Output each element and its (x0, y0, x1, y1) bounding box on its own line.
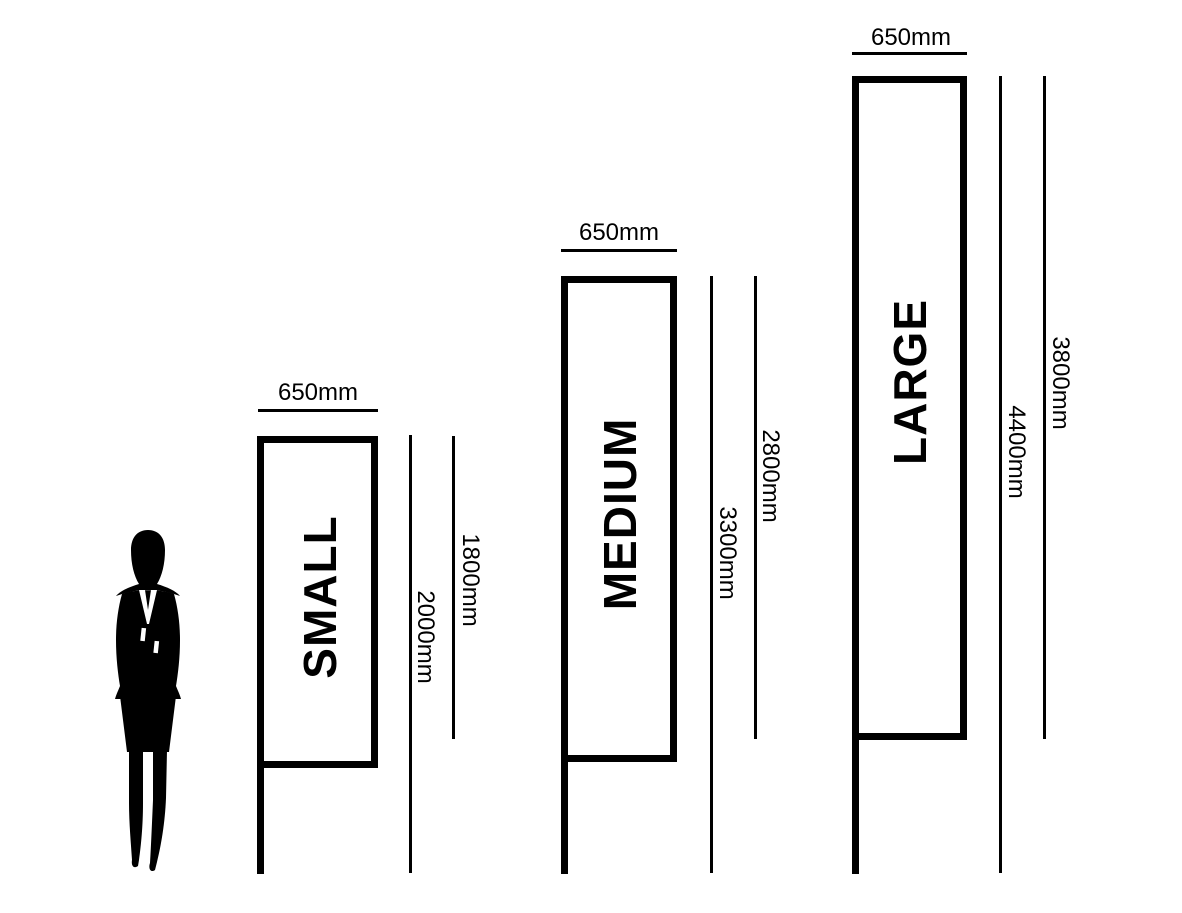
small-banner-height-label: 1800mm (456, 533, 484, 626)
small-banner-height-line (452, 436, 455, 739)
small-banner-pole (257, 760, 264, 874)
large-banner-name: LARGE (883, 299, 937, 465)
large-banner-pole (852, 733, 859, 874)
small-banner-name: SMALL (293, 515, 347, 678)
medium-banner-height-label: 2800mm (756, 429, 784, 522)
large-width-line (852, 52, 967, 55)
medium-banner-pole (561, 755, 568, 874)
small-width-label: 650mm (278, 379, 358, 407)
medium-total-height-label: 3300mm (713, 506, 741, 599)
large-width-label: 650mm (871, 24, 951, 52)
medium-width-line (561, 249, 677, 252)
businesswoman-silhouette-icon (103, 528, 193, 873)
small-width-line (258, 409, 378, 412)
small-total-height-label: 2000mm (411, 590, 439, 683)
large-banner-height-label: 3800mm (1046, 336, 1074, 429)
medium-banner-name: MEDIUM (593, 418, 647, 611)
medium-width-label: 650mm (579, 219, 659, 247)
banner-size-diagram: 650mm SMALL 2000mm 1800mm 650mm MEDIUM 3… (0, 0, 1182, 913)
large-total-height-label: 4400mm (1002, 405, 1030, 498)
